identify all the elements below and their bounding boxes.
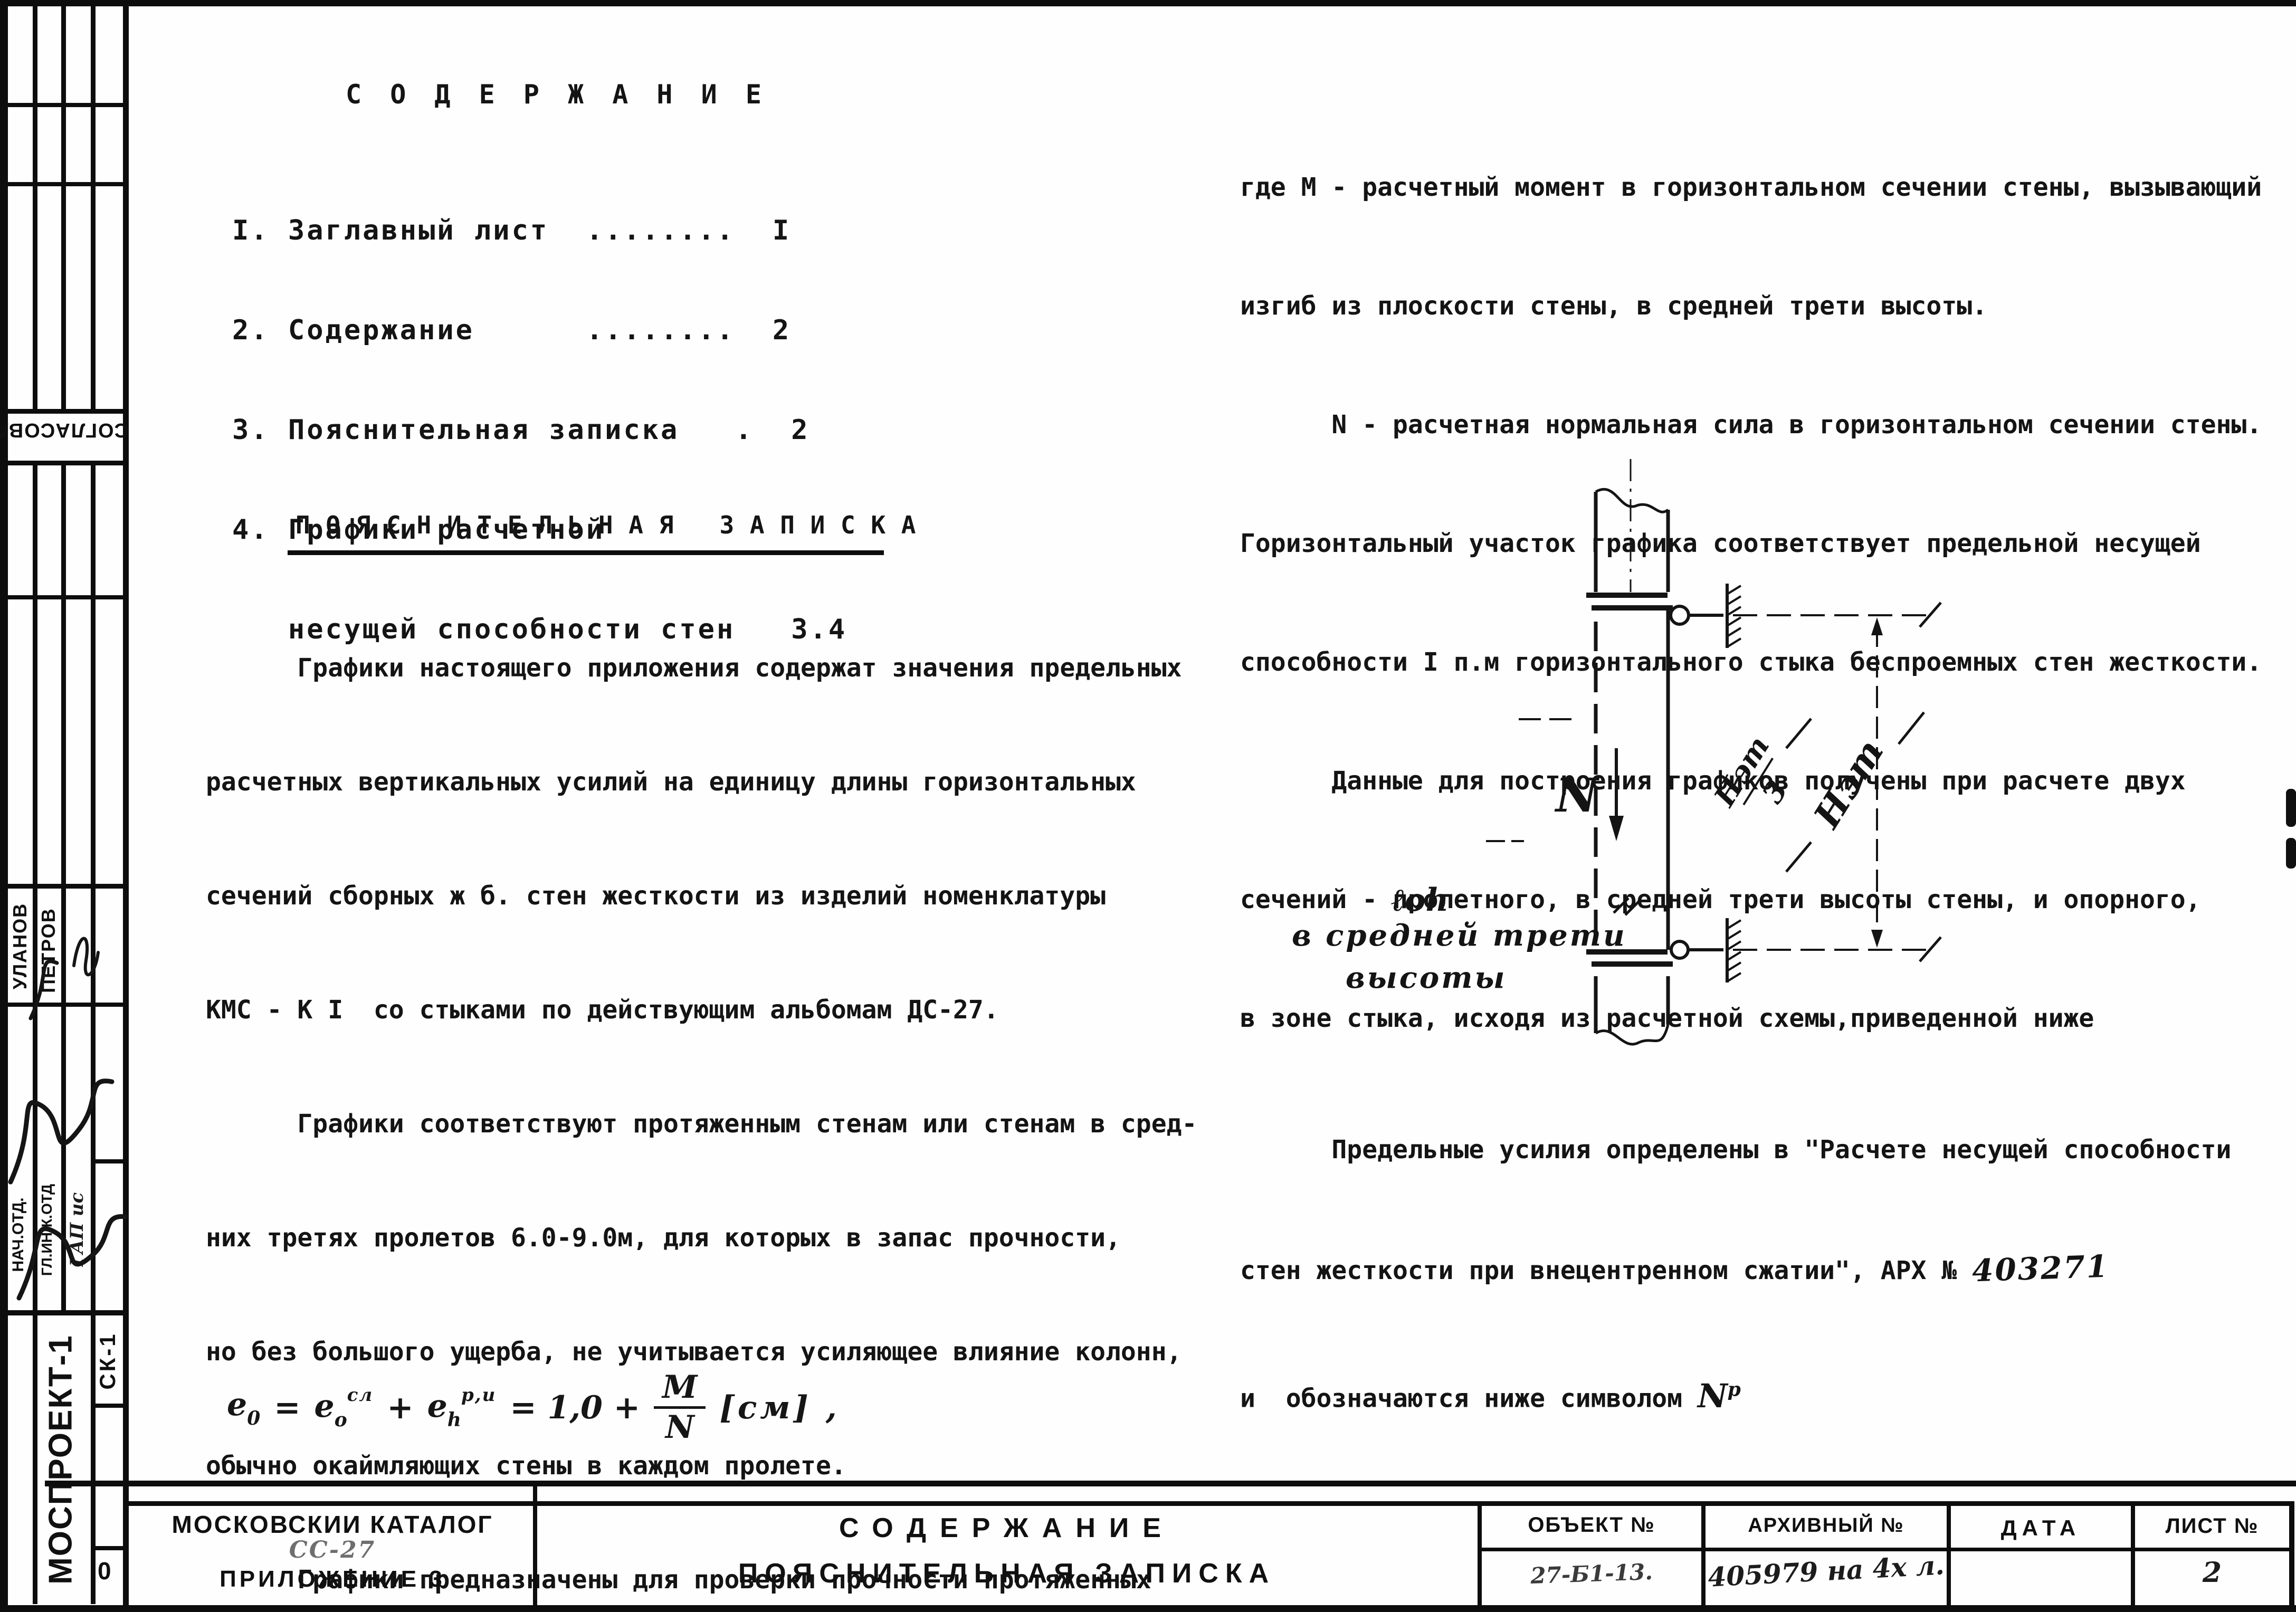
toc-line-2: 2. Содержание ........ 2 (232, 314, 847, 347)
formula-e-osl: eосл (315, 1385, 374, 1431)
page-left-border (0, 0, 8, 1612)
formula-unit: [см] , (719, 1389, 840, 1426)
formula-eq1: = (274, 1389, 300, 1426)
eccentricity-label: ℓoh (1391, 882, 1449, 919)
dim-label-total: Нэт (1805, 732, 1892, 836)
sidebar-divider-1 (0, 103, 129, 107)
text-line: и обозначаются ниже символом Nр (1240, 1370, 2231, 1419)
titleblock-div-2 (1478, 1501, 1482, 1605)
sidebar-divider-2 (0, 182, 129, 186)
text-line: N - расчетная нормальная сила в горизонт… (1240, 405, 2262, 445)
titleblock-div-1 (533, 1483, 537, 1605)
text-line: Графики соответствуют протяженным стенам… (206, 1105, 1197, 1143)
formula-plus: + (387, 1389, 413, 1426)
page-top-border (0, 0, 2296, 6)
sidebar-divider-3 (0, 409, 129, 414)
archive-number-label: АРХИВНЫЙ № (1706, 1514, 1947, 1537)
titleblock-right-border (2289, 1501, 2294, 1605)
svg-text:Нэт: Нэт (1805, 732, 1892, 836)
approved-stamp: СОГЛАСОВАНО (0, 418, 129, 441)
caption-line-2: высоты (1346, 960, 1507, 995)
doc-title-line2: ПОЯСНИТЕЛЬНАЯ ЗАПИСКА (537, 1558, 1476, 1589)
sidebar-divider-4 (0, 461, 129, 465)
text-line: где М - расчетный момент в горизонтально… (1240, 168, 2262, 207)
text-line: сечений сборных ж б. стен жесткости из и… (206, 877, 1197, 915)
note-title-underline (288, 550, 884, 555)
lower-support-pin (1671, 941, 1688, 958)
catalog-name: МОСКОВСКИИ КАТАЛОГ (137, 1510, 528, 1539)
sidebar-right-border (123, 0, 129, 1605)
formula-eh: ehр,и (427, 1385, 497, 1431)
date-label: ДАТА (1951, 1515, 2131, 1541)
note-closing: Предельные усилия определены в "Расчете … (1240, 1051, 2231, 1498)
dept-name-sk1: СК-1 (95, 1316, 119, 1406)
sidebar-line-2 (61, 0, 66, 409)
text-line: стен жесткости при внецентренном сжатии"… (1240, 1249, 2231, 1291)
scan-artifact (2286, 789, 2296, 827)
toc-title: С О Д Е Р Ж А Н И Е (346, 79, 768, 110)
archive-number-value: 405979 на 4х л. (1705, 1549, 1947, 1593)
lower-break-line (1596, 1025, 1668, 1044)
text-line: них третях пролетов 6.0-9.0м, для которы… (206, 1219, 1197, 1257)
symbol-Np-handwritten: Nр (1698, 1377, 1741, 1415)
text-line: обычно окаймляющих стены в каждом пролет… (206, 1447, 1197, 1485)
upper-support-pin (1671, 606, 1689, 624)
text-line: изгиб из плоскости стены, в средней трет… (1240, 287, 2262, 326)
content-bottom-rule (45, 1481, 2296, 1486)
text-line: Графики настоящего приложения содержат з… (206, 649, 1197, 687)
sheet-zero-mark: 0 (98, 1557, 111, 1585)
sidebar-line-1 (33, 0, 37, 409)
object-number-value: 27-Б1-13. (1481, 1557, 1701, 1590)
upper-break-line (1596, 489, 1668, 512)
catalog-series-handwritten: СС-27 (137, 1537, 528, 1563)
sidebar-divider-5 (0, 595, 129, 599)
caption-line-1: в средней трети (1292, 918, 1627, 953)
catalog-appendix: ПРИЛОЖЕНИЕ 3 (137, 1566, 528, 1592)
sidebar-divider-11 (91, 1546, 129, 1550)
titleblock-top-border (129, 1501, 2293, 1506)
text-line: КМС - К I со стыками по действующим альб… (206, 991, 1197, 1029)
titleblock-div-3 (1701, 1501, 1706, 1605)
toc-line-1: I. Заглавный лист ........ I (232, 214, 847, 247)
text-line: Предельные усилия определены в "Расчете … (1240, 1130, 2231, 1170)
object-number-label: ОБЪЕКТ № (1482, 1513, 1701, 1537)
note-left-column: Графики настоящего приложения содержат з… (206, 573, 1197, 1612)
titleblock-div-5 (2131, 1501, 2135, 1605)
sidebar-line-3 (91, 0, 96, 409)
text-line: расчетных вертикальных усилий на единицу… (206, 763, 1197, 801)
svg-text:3: 3 (1755, 775, 1794, 809)
archive-number-handwritten: 403271 (1971, 1246, 2110, 1291)
text-line: но без большого ущерба, не учитывается у… (206, 1333, 1197, 1371)
sheet-number-label: ЛИСТ № (2135, 1514, 2289, 1538)
force-N-label: N (1554, 768, 1600, 823)
dim-label-third: Нэт 3 (1707, 730, 1809, 834)
org-name-mosproekt: МОСПРОЕКТ-1 (42, 1313, 80, 1606)
sidebar-signatures (0, 844, 133, 1319)
titleblock-header-divider (1478, 1548, 2294, 1551)
toc-line-3: 3. Пояснительная записка . 2 (232, 414, 847, 447)
formula-e0: e0 (227, 1386, 260, 1429)
scan-artifact (2286, 838, 2296, 869)
note-title: П О Я С Н И Т Е Л Ь Н А Я З А П И С К А (296, 511, 916, 539)
sheet-number-value: 2 (2135, 1557, 2289, 1589)
wall-design-scheme: Нэт 3 Нэт N ℓoh в средней трети высоты (1266, 459, 1963, 1071)
formula-eq2: = 1,0 + (510, 1389, 640, 1426)
eccentricity-formula: e0 = eосл + ehр,и = 1,0 + M N [см] , (227, 1371, 840, 1444)
formula-fraction-MN: M N (654, 1371, 706, 1444)
scanned-document-page: СОГЛАСОВАНО УЛАНОВ ПЕТРОВ НАЧ.ОТД. ГЛ.ИН… (0, 0, 2296, 1612)
titleblock-div-4 (1947, 1501, 1951, 1605)
doc-title-line1: СОДЕРЖАНИЕ (537, 1512, 1476, 1544)
